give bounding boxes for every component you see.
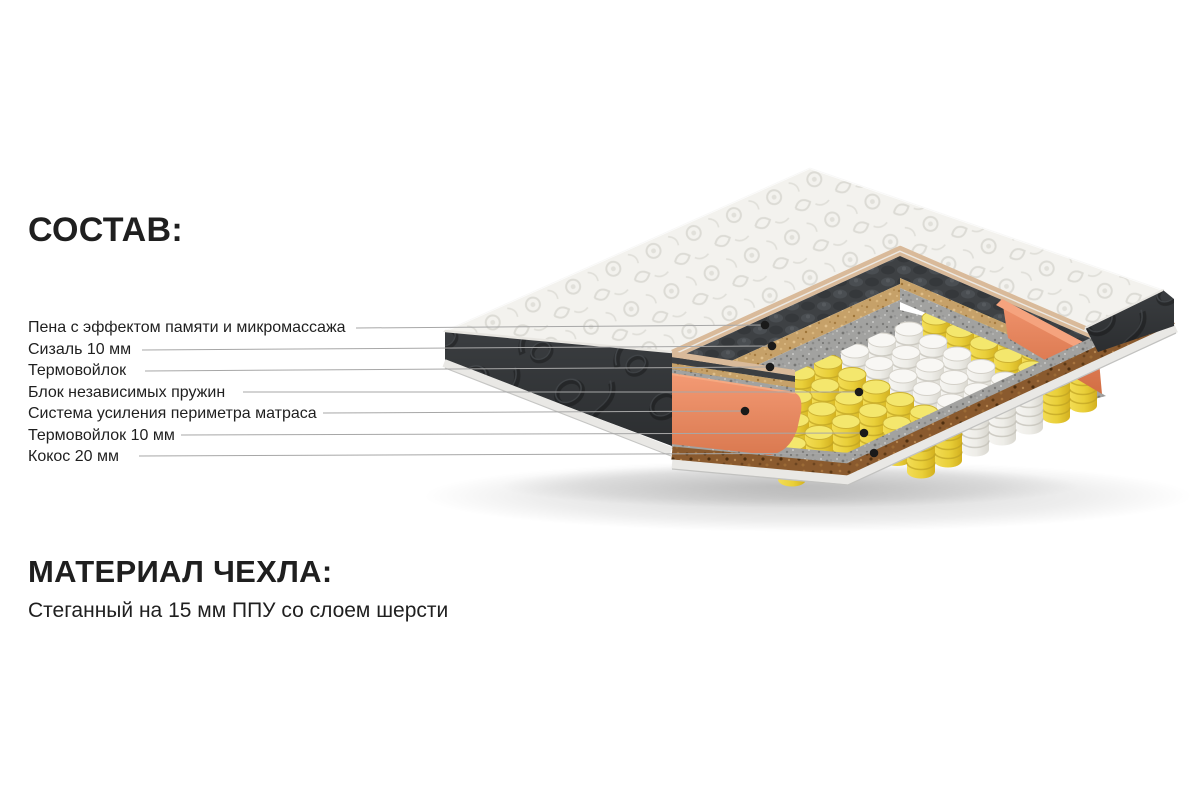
layer-label-memory-foam: Пена с эффектом памяти и микромассажа	[28, 318, 346, 338]
layer-label-springs: Блок независимых пружин	[28, 383, 225, 403]
callout-dot-sisal	[768, 342, 777, 351]
layer-label-perimeter: Система усиления периметра матраса	[28, 404, 317, 424]
callout-dot-perimeter	[741, 407, 750, 416]
infographic-page: СОСТАВ: Пена с эффектом памяти и микрома…	[0, 0, 1191, 794]
layer-label-thermofelt: Термовойлок	[28, 361, 126, 381]
callout-dot-thermofelt	[766, 363, 775, 372]
layer-label-thermofelt-bottom: Термовойлок 10 мм	[28, 426, 175, 446]
callout-dot-memory-foam	[761, 321, 770, 330]
layer-label-sisal: Сизаль 10 мм	[28, 340, 131, 360]
callout-dot-thermofelt-bottom	[860, 429, 869, 438]
cover-material-description: Стеганный на 15 мм ППУ со слоем шерсти	[28, 599, 448, 623]
layer-label-coconut: Кокос 20 мм	[28, 447, 119, 467]
composition-title: СОСТАВ:	[28, 211, 183, 250]
callout-dot-springs	[855, 388, 864, 397]
callout-dot-coconut	[870, 449, 879, 458]
cover-material-title: МАТЕРИАЛ ЧЕХЛА:	[28, 554, 332, 590]
